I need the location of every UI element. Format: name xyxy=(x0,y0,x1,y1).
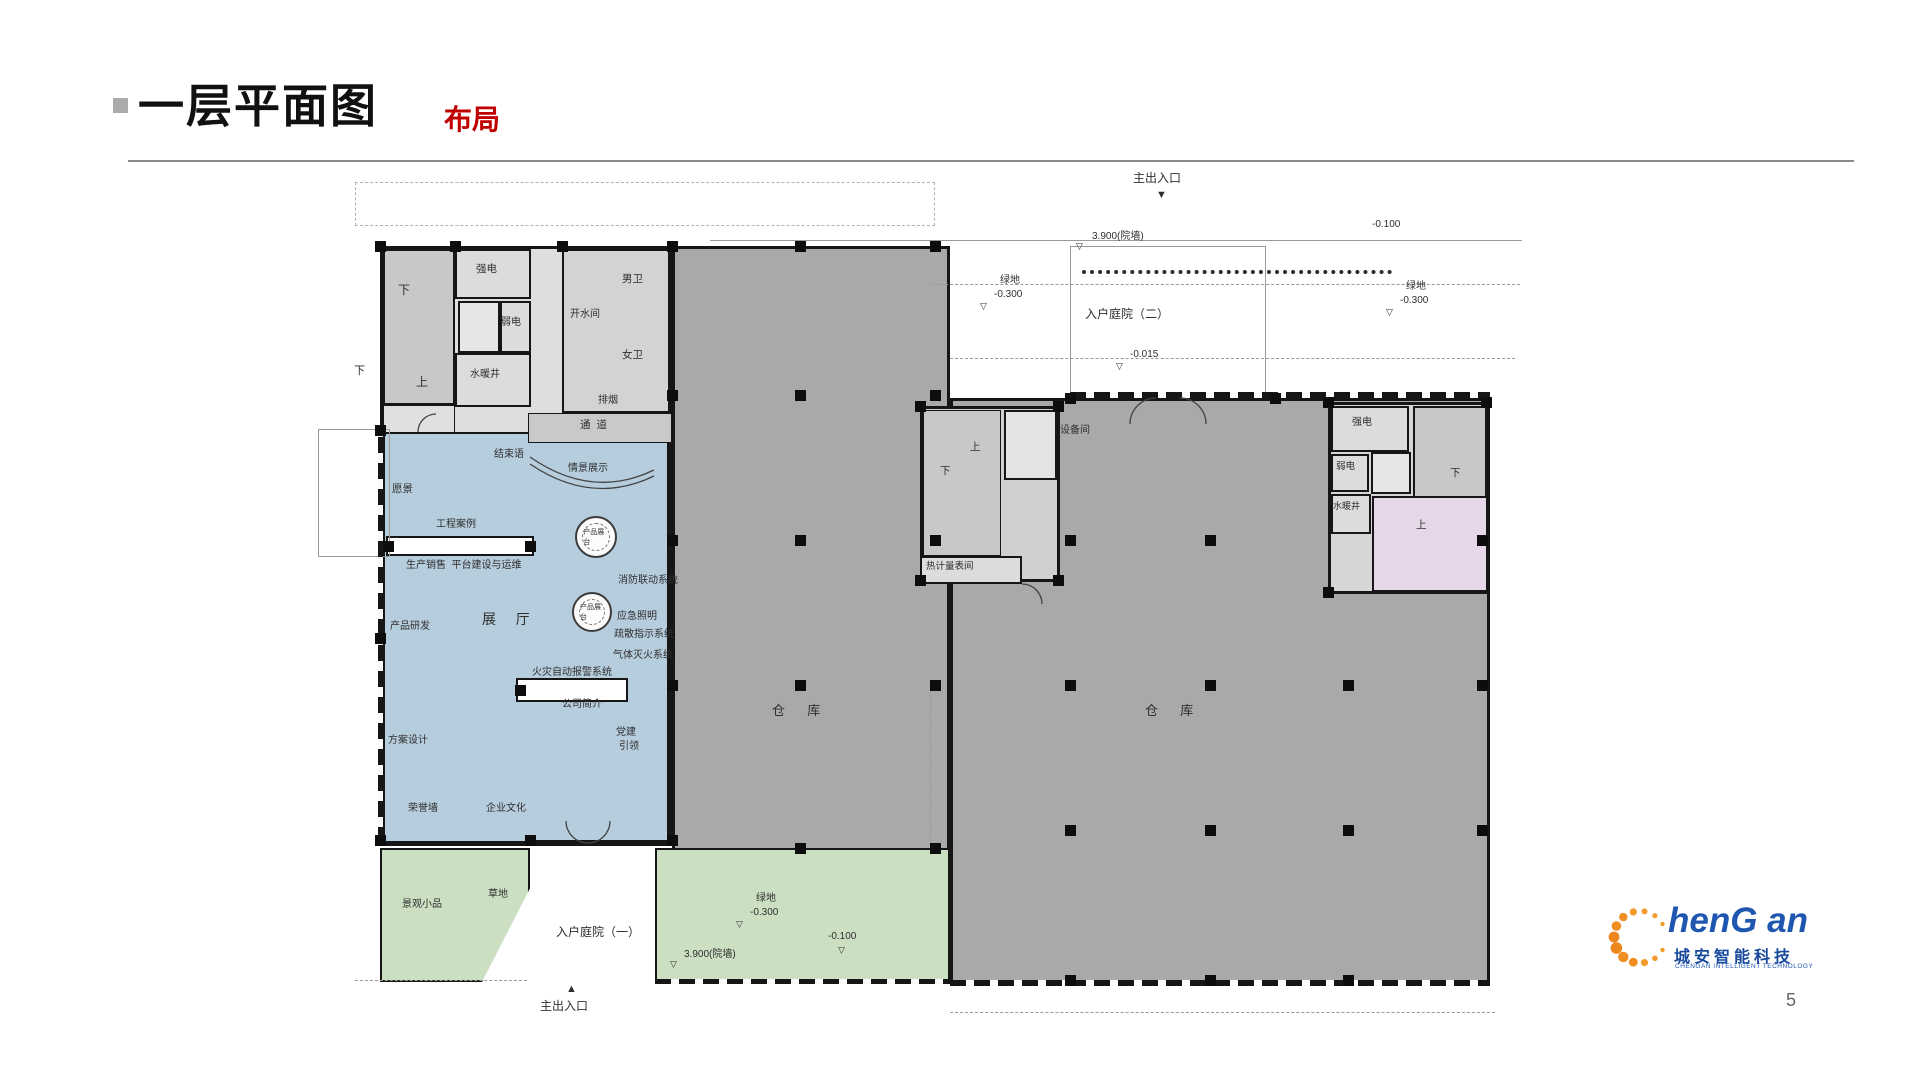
page-title: 一层平面图 xyxy=(138,70,378,136)
slide: { "header": { "title": "一层平面图", "subtitl… xyxy=(0,0,1920,1080)
plan-label: 下 xyxy=(354,366,365,378)
page-subtitle: 布局 xyxy=(444,98,500,138)
logo-brand-text: henG an xyxy=(1668,901,1808,941)
title-rule xyxy=(128,160,1854,162)
floor-plan: 产品展台产品展台下上强电弱电水暖井开水间男卫女卫排烟通道结束语情景展示愿景工程案… xyxy=(370,180,1520,1040)
plan-arcs xyxy=(370,180,1520,1040)
title-bullet xyxy=(113,98,128,113)
company-logo: henG an 城安智能科技 CHENGAN INTELLIGENT TECHN… xyxy=(1598,893,1858,993)
logo-english-name: CHENGAN INTELLIGENT TECHNOLOGY xyxy=(1675,963,1813,970)
page-number: 5 xyxy=(1786,990,1796,1011)
